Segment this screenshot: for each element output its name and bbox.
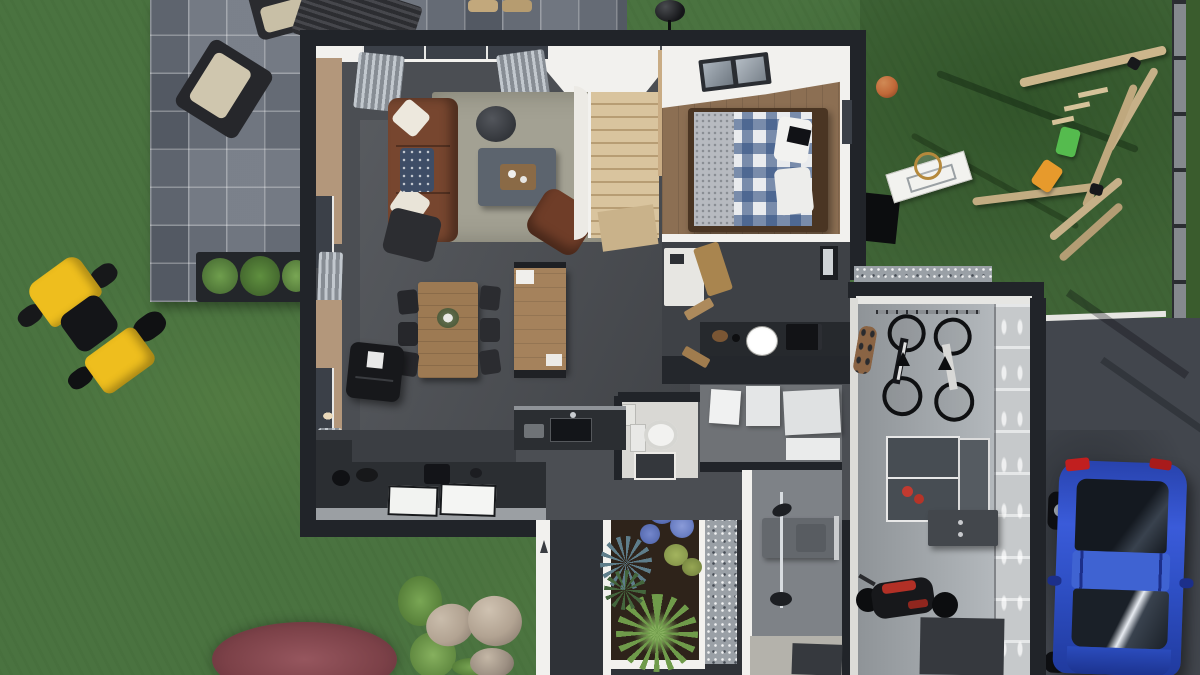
bed-gray-blanket bbox=[694, 112, 734, 226]
storage-box-3 bbox=[783, 389, 841, 436]
wc-wall-top bbox=[618, 392, 702, 402]
niche-doorbell bbox=[540, 540, 548, 553]
cabinet-handle-1 bbox=[958, 520, 963, 525]
paddle-2 bbox=[914, 494, 924, 504]
car-rear-window bbox=[1075, 478, 1169, 553]
bathroom-vanity bbox=[762, 518, 836, 558]
island-appliance bbox=[524, 424, 544, 438]
planter-shrub-1 bbox=[202, 258, 238, 294]
pingpong-centerline bbox=[888, 477, 958, 479]
garage-wall-cabinet bbox=[928, 510, 998, 546]
dining-chair-r3 bbox=[478, 349, 501, 376]
kitchen-sink-1 bbox=[387, 485, 438, 517]
sofa-cushion-line bbox=[396, 145, 450, 147]
wc-shower-mat bbox=[634, 452, 676, 480]
island-napkin-1 bbox=[516, 270, 534, 284]
grill-leg bbox=[668, 20, 671, 30]
wood-stove bbox=[345, 341, 405, 402]
dining-chair-r1 bbox=[479, 285, 501, 311]
wood-bowl bbox=[712, 330, 728, 342]
towel-bar bbox=[834, 516, 839, 560]
paddle-1 bbox=[902, 486, 913, 497]
blue-car bbox=[1044, 455, 1199, 675]
dining-table bbox=[418, 282, 478, 378]
dining-centerpiece bbox=[437, 308, 459, 328]
kitchen-small-item bbox=[470, 468, 482, 478]
floorplan-3d-render bbox=[0, 0, 1200, 675]
dining-chair-l1 bbox=[397, 289, 419, 315]
car-roof bbox=[1071, 550, 1170, 591]
microwave bbox=[786, 324, 822, 350]
kettle-grill bbox=[652, 0, 688, 30]
armchair-cushion bbox=[188, 51, 253, 121]
coffee-table-cup bbox=[508, 170, 516, 178]
stair-landing bbox=[597, 204, 658, 251]
utility-bottom-counter bbox=[700, 322, 850, 356]
moto-handlebar bbox=[858, 574, 876, 586]
coffee-table-cup-2 bbox=[520, 176, 527, 183]
car-hood bbox=[1066, 646, 1171, 675]
storage-box-4 bbox=[786, 438, 840, 460]
house-wall-right-upper bbox=[850, 30, 866, 280]
plant-spiky-dark bbox=[604, 570, 646, 610]
house-wall-bottom-kitchen bbox=[300, 520, 516, 537]
skylight-pane-2 bbox=[736, 56, 767, 83]
shower-head-bottom bbox=[770, 592, 792, 606]
skylight-pane-1 bbox=[703, 60, 734, 87]
garage-floor-mat bbox=[920, 617, 1005, 675]
kitchen-island bbox=[514, 410, 626, 450]
kitchen-pot bbox=[356, 468, 378, 482]
kitchen-sink-2 bbox=[439, 483, 496, 517]
car-mirror-left bbox=[1047, 575, 1061, 585]
bike1-wheel-bottom bbox=[881, 375, 923, 417]
dining-chair-r2 bbox=[480, 318, 500, 342]
stove-glass bbox=[366, 351, 384, 369]
patio-stool-1 bbox=[468, 0, 498, 12]
garage-wall-right-outer bbox=[1030, 298, 1046, 675]
island-sink bbox=[550, 418, 592, 442]
toilet-bowl bbox=[644, 420, 678, 450]
moto-rear-wheel bbox=[932, 592, 958, 618]
plant-round-bush-2 bbox=[682, 558, 702, 576]
planter-shrub-2 bbox=[240, 256, 280, 296]
basketball-hoop-ring bbox=[914, 152, 942, 180]
bicycle-2 bbox=[922, 317, 975, 424]
kitchen-kettle bbox=[332, 470, 350, 486]
garage-top-edge-white bbox=[856, 296, 1032, 304]
shelf-small-item bbox=[732, 334, 740, 342]
car-taillight-left bbox=[1065, 457, 1090, 471]
coffee-machine bbox=[424, 464, 450, 484]
bathroom-mat bbox=[791, 643, 842, 675]
car-mirror-right bbox=[1179, 578, 1193, 588]
bike2-wheel-top bbox=[932, 316, 973, 357]
island-table bbox=[514, 268, 566, 372]
house-wall-left bbox=[300, 30, 316, 536]
utility-picture-frame bbox=[820, 246, 838, 280]
rock-3 bbox=[470, 648, 514, 675]
sofa-throw-navy bbox=[400, 148, 434, 192]
island-table-cap-bottom bbox=[514, 370, 566, 378]
island-faucet bbox=[570, 412, 576, 418]
plant-hydrangea-3 bbox=[640, 524, 660, 544]
patio-stool-2 bbox=[502, 0, 532, 12]
bedroom-right-window bbox=[842, 100, 852, 144]
picture-frame-inner bbox=[823, 249, 833, 275]
wall-clock bbox=[746, 326, 778, 356]
house-wall-top bbox=[300, 30, 866, 46]
dining-chair-l2 bbox=[398, 322, 418, 346]
grill-body bbox=[655, 0, 685, 22]
island-napkin-2 bbox=[546, 354, 562, 366]
basketball bbox=[876, 76, 898, 98]
stove-door-line bbox=[355, 376, 393, 382]
vanity-basin bbox=[796, 524, 826, 552]
patio-planter bbox=[196, 252, 312, 302]
bed-pillow-2 bbox=[774, 166, 815, 216]
storage-box-1 bbox=[709, 389, 741, 425]
storage-box-2 bbox=[746, 386, 780, 426]
cabinet-handle-2 bbox=[958, 532, 963, 537]
hall-wall-dark bbox=[662, 356, 850, 384]
utility-counter-item bbox=[670, 254, 684, 264]
car-windshield bbox=[1071, 588, 1169, 649]
round-lounge-chair bbox=[476, 106, 516, 142]
coffee-table-tray bbox=[500, 164, 536, 190]
utility-ceiling-strip bbox=[662, 234, 850, 242]
